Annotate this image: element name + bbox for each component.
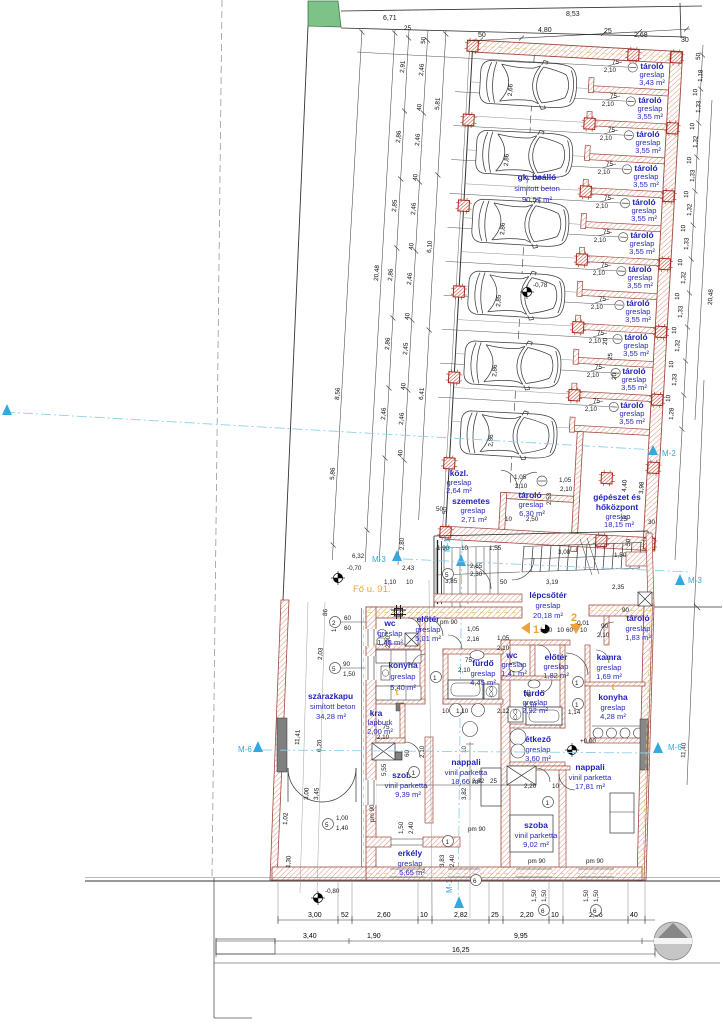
svg-text:2,46: 2,46	[406, 272, 414, 285]
svg-text:2,50: 2,50	[526, 516, 539, 523]
svg-text:25: 25	[620, 516, 628, 523]
svg-text:greslap: greslap	[391, 672, 416, 681]
svg-text:3,08: 3,08	[558, 549, 571, 556]
svg-text:1: 1	[546, 800, 550, 807]
svg-text:2,35: 2,35	[612, 584, 625, 591]
svg-text:2,64 m²: 2,64 m²	[446, 486, 472, 495]
svg-text:2,46: 2,46	[418, 63, 426, 76]
svg-text:75: 75	[612, 59, 620, 66]
svg-text:vinil parketta: vinil parketta	[385, 781, 428, 790]
svg-text:50: 50	[478, 32, 486, 39]
svg-text:pm 90: pm 90	[528, 858, 546, 865]
svg-text:20,48: 20,48	[373, 264, 381, 281]
svg-text:10: 10	[692, 88, 699, 96]
svg-text:2,40: 2,40	[449, 854, 456, 867]
svg-text:nappali: nappali	[575, 762, 604, 772]
svg-text:40: 40	[397, 449, 405, 457]
svg-text:10: 10	[677, 258, 684, 266]
svg-text:2,90: 2,90	[385, 635, 392, 648]
svg-text:40: 40	[400, 382, 408, 390]
svg-text:2,60: 2,60	[377, 912, 391, 919]
svg-text:90: 90	[622, 607, 630, 614]
svg-text:10: 10	[665, 394, 672, 402]
svg-text:pm 90: pm 90	[369, 804, 376, 822]
svg-text:kra: kra	[370, 708, 383, 718]
svg-text:1,32: 1,32	[692, 135, 700, 148]
svg-text:1,05: 1,05	[514, 474, 527, 481]
svg-text:3,55 m²: 3,55 m²	[629, 247, 655, 256]
svg-text:2,53: 2,53	[546, 492, 553, 505]
svg-text:75: 75	[601, 262, 609, 269]
svg-text:10: 10	[671, 326, 678, 334]
svg-text:2,10: 2,10	[593, 270, 606, 277]
svg-text:50: 50	[695, 52, 702, 60]
svg-text:4,45 m²: 4,45 m²	[470, 678, 496, 687]
svg-text:M-3: M-3	[372, 555, 386, 564]
svg-text:90: 90	[343, 661, 351, 668]
svg-text:vinil parketta: vinil parketta	[445, 768, 488, 777]
svg-text:1,50: 1,50	[398, 821, 405, 834]
svg-text:8,53: 8,53	[566, 11, 580, 18]
svg-text:M-2: M-2	[662, 449, 676, 458]
svg-text:2,16: 2,16	[467, 636, 480, 643]
svg-text:25: 25	[404, 25, 412, 32]
svg-text:előtér: előtér	[417, 614, 441, 624]
svg-text:2,86: 2,86	[384, 337, 392, 350]
svg-text:1,33: 1,33	[677, 305, 685, 318]
svg-text:6: 6	[473, 878, 477, 885]
svg-text:20,48: 20,48	[707, 289, 715, 306]
svg-text:3,55 m²: 3,55 m²	[625, 315, 651, 324]
svg-text:25: 25	[607, 352, 614, 360]
svg-text:2,86: 2,86	[395, 130, 403, 143]
svg-text:-0,80: -0,80	[325, 888, 340, 895]
svg-text:3,55 m²: 3,55 m²	[635, 146, 661, 155]
svg-text:2,80: 2,80	[399, 537, 406, 550]
svg-text:3,98: 3,98	[638, 481, 646, 494]
svg-text:75: 75	[382, 724, 390, 731]
svg-text:2,10: 2,10	[598, 169, 611, 176]
svg-text:2,45: 2,45	[402, 342, 410, 355]
svg-text:75: 75	[593, 398, 601, 405]
svg-text:pm 90: pm 90	[586, 858, 604, 865]
svg-text:1,18: 1,18	[697, 69, 705, 82]
svg-text:40: 40	[630, 912, 638, 919]
svg-text:10: 10	[683, 190, 690, 198]
svg-text:50: 50	[420, 36, 428, 44]
svg-text:1,33: 1,33	[689, 169, 697, 182]
svg-text:75: 75	[606, 161, 614, 168]
svg-text:10: 10	[680, 224, 687, 232]
svg-text:2,10: 2,10	[377, 734, 390, 741]
svg-text:10: 10	[505, 516, 513, 523]
svg-text:40: 40	[404, 312, 412, 320]
svg-text:2,86: 2,86	[491, 364, 499, 377]
svg-text:25: 25	[490, 778, 498, 785]
svg-text:1,50: 1,50	[593, 889, 600, 902]
svg-text:2,12: 2,12	[497, 708, 510, 715]
svg-text:75: 75	[599, 296, 607, 303]
svg-text:2,10: 2,10	[604, 67, 617, 74]
svg-text:40: 40	[408, 242, 416, 250]
svg-text:greslap: greslap	[519, 500, 544, 509]
svg-text:greslap: greslap	[544, 662, 569, 671]
svg-text:2,10: 2,10	[419, 745, 426, 758]
svg-text:8,56: 8,56	[334, 387, 342, 400]
svg-text:3,55 m²: 3,55 m²	[623, 349, 649, 358]
svg-text:simított beton: simított beton	[514, 184, 560, 193]
svg-text:étkező: étkező	[525, 734, 551, 744]
svg-text:3,00: 3,00	[303, 787, 311, 800]
svg-text:1,90: 1,90	[367, 933, 381, 940]
svg-text:tároló: tároló	[518, 490, 541, 500]
svg-text:2,86: 2,86	[503, 153, 511, 166]
svg-text:90,57 m²: 90,57 m²	[522, 195, 552, 204]
svg-text:3,55 m²: 3,55 m²	[637, 112, 663, 121]
svg-text:5,55: 5,55	[381, 763, 388, 776]
svg-text:60: 60	[344, 615, 352, 622]
svg-text:1,50: 1,50	[531, 889, 538, 902]
svg-text:1,33: 1,33	[683, 237, 691, 250]
svg-text:20: 20	[602, 337, 609, 345]
svg-text:3,40: 3,40	[303, 933, 317, 940]
svg-text:2,10: 2,10	[524, 702, 537, 709]
svg-text:2,10: 2,10	[589, 338, 602, 345]
svg-text:75: 75	[595, 364, 603, 371]
svg-text:1: 1	[446, 839, 450, 846]
svg-text:40: 40	[412, 173, 420, 181]
svg-text:5: 5	[332, 666, 336, 673]
svg-text:75: 75	[610, 93, 618, 100]
svg-text:75: 75	[597, 330, 605, 337]
svg-text:9,95: 9,95	[514, 933, 528, 940]
svg-text:60: 60	[344, 625, 352, 632]
svg-text:5,81: 5,81	[434, 97, 442, 110]
svg-text:1,00: 1,00	[336, 815, 349, 822]
svg-text:2,46: 2,46	[410, 202, 418, 215]
svg-text:86: 86	[322, 608, 329, 616]
svg-text:1,33: 1,33	[695, 100, 703, 113]
svg-text:greslap: greslap	[416, 625, 441, 634]
svg-text:1,83 m²: 1,83 m²	[625, 633, 651, 642]
svg-text:5,01 m²: 5,01 m²	[415, 634, 441, 643]
svg-text:hőközpont: hőközpont	[596, 502, 639, 512]
svg-text:25: 25	[491, 912, 499, 919]
svg-text:1,32: 1,32	[686, 203, 694, 216]
svg-text:50: 50	[625, 538, 632, 546]
svg-text:1,10: 1,10	[384, 579, 397, 586]
svg-text:52: 52	[341, 912, 349, 919]
svg-text:10: 10	[689, 122, 696, 130]
svg-text:6,71: 6,71	[383, 15, 397, 22]
svg-text:2,86: 2,86	[387, 268, 395, 281]
svg-text:2,10: 2,10	[596, 203, 609, 210]
svg-text:11,41: 11,41	[294, 729, 302, 745]
svg-text:2,40: 2,40	[408, 821, 415, 834]
svg-text:2,71 m²: 2,71 m²	[461, 515, 487, 524]
svg-text:60: 60	[404, 749, 411, 757]
svg-text:10: 10	[552, 783, 560, 790]
svg-text:2,20: 2,20	[524, 783, 537, 790]
svg-text:gk. beálló: gk. beálló	[518, 172, 557, 182]
svg-text:3,55 m²: 3,55 m²	[631, 214, 657, 223]
svg-text:2,82: 2,82	[454, 912, 468, 919]
svg-text:greslap: greslap	[398, 859, 423, 868]
svg-text:greslap: greslap	[626, 624, 651, 633]
svg-text:2,10: 2,10	[594, 237, 607, 244]
svg-text:2,10: 2,10	[497, 645, 510, 652]
svg-text:szemetes: szemetes	[452, 496, 490, 506]
svg-text:3,55 m²: 3,55 m²	[621, 383, 647, 392]
svg-text:M-1: M-1	[443, 538, 452, 552]
svg-text:1,33: 1,33	[671, 373, 679, 386]
svg-text:-0,01: -0,01	[575, 620, 590, 627]
svg-text:1,05: 1,05	[467, 626, 480, 633]
svg-text:3,55 m²: 3,55 m²	[619, 417, 645, 426]
svg-text:2,10: 2,10	[602, 101, 615, 108]
svg-text:3,83: 3,83	[439, 854, 446, 867]
svg-text:17,81 m²: 17,81 m²	[575, 782, 605, 791]
svg-text:2,46: 2,46	[380, 407, 388, 420]
svg-text:3,55 m²: 3,55 m²	[633, 180, 659, 189]
svg-text:1,14: 1,14	[568, 709, 581, 716]
svg-text:1,02: 1,02	[282, 812, 290, 825]
svg-text:1,30: 1,30	[285, 855, 293, 868]
svg-text:greslap: greslap	[601, 703, 626, 712]
svg-text:10: 10	[686, 156, 693, 164]
svg-text:szoba: szoba	[524, 820, 548, 830]
svg-text:3,82: 3,82	[461, 787, 468, 800]
svg-text:10: 10	[551, 912, 559, 919]
svg-text:2,85: 2,85	[391, 199, 399, 212]
svg-text:34,28 m²: 34,28 m²	[316, 712, 346, 721]
svg-text:2,10: 2,10	[587, 372, 600, 379]
svg-text:10: 10	[580, 627, 588, 634]
svg-text:1: 1	[575, 680, 579, 687]
svg-text:1,50: 1,50	[614, 552, 627, 559]
svg-text:nappali: nappali	[451, 757, 480, 767]
svg-text:3,19: 3,19	[546, 579, 559, 586]
svg-text:közl.: közl.	[450, 468, 469, 478]
svg-text:16,25: 16,25	[452, 947, 470, 954]
svg-text:2: 2	[332, 620, 336, 627]
svg-text:előtér: előtér	[545, 652, 569, 662]
svg-text:greslap: greslap	[536, 601, 561, 610]
svg-text:2,10: 2,10	[458, 667, 471, 674]
svg-text:2,68: 2,68	[634, 32, 648, 39]
svg-text:1,82 m²: 1,82 m²	[543, 671, 569, 680]
svg-text:10: 10	[668, 360, 675, 368]
svg-text:t: t	[396, 687, 399, 697]
svg-text:9,02 m²: 9,02 m²	[523, 840, 549, 849]
svg-text:60: 60	[566, 627, 574, 634]
svg-text:5,40 m²: 5,40 m²	[390, 683, 416, 692]
svg-text:konyha: konyha	[388, 660, 418, 670]
svg-text:1,05: 1,05	[559, 477, 572, 484]
svg-text:-0,78: -0,78	[533, 282, 548, 289]
svg-text:2,46: 2,46	[414, 133, 422, 146]
svg-text:75: 75	[604, 195, 612, 202]
svg-text:t: t	[612, 682, 615, 692]
svg-text:2,10: 2,10	[515, 483, 528, 490]
svg-text:erkély: erkély	[398, 848, 423, 858]
svg-text:40: 40	[416, 103, 424, 111]
svg-text:+0,00: +0,00	[580, 738, 596, 745]
svg-text:konyha: konyha	[598, 692, 628, 702]
svg-text:6,32: 6,32	[352, 553, 365, 560]
svg-text:50: 50	[500, 579, 508, 586]
svg-text:1: 1	[433, 675, 437, 682]
svg-text:szárazkapu: szárazkapu	[308, 691, 353, 701]
svg-text:2,66: 2,66	[507, 83, 515, 96]
svg-text:20: 20	[611, 372, 618, 380]
svg-text:greslap: greslap	[461, 506, 486, 515]
svg-text:2,10: 2,10	[600, 135, 613, 142]
svg-text:90: 90	[601, 623, 609, 630]
svg-text:M-3: M-3	[688, 576, 702, 585]
svg-text:1: 1	[575, 702, 579, 709]
svg-text:2,86: 2,86	[499, 222, 507, 235]
svg-text:1,28: 1,28	[668, 407, 676, 420]
svg-text:6,10: 6,10	[426, 240, 434, 253]
svg-text:1,32: 1,32	[680, 271, 688, 284]
svg-text:greslap: greslap	[471, 669, 496, 678]
svg-text:1,05: 1,05	[497, 635, 510, 642]
svg-text:2,10: 2,10	[597, 632, 610, 639]
svg-text:2,10: 2,10	[591, 304, 604, 311]
svg-text:1,50: 1,50	[541, 889, 548, 902]
svg-text:lépcsőtér: lépcsőtér	[529, 590, 567, 600]
svg-text:1,50: 1,50	[343, 671, 356, 678]
svg-text:1,41 m²: 1,41 m²	[501, 669, 527, 678]
svg-text:-0,70: -0,70	[347, 565, 362, 572]
svg-text:3,55 m²: 3,55 m²	[627, 281, 653, 290]
svg-text:greslap: greslap	[502, 660, 527, 669]
svg-text:2,10: 2,10	[585, 406, 598, 413]
svg-text:2,30: 2,30	[470, 571, 483, 578]
svg-text:5,86: 5,86	[329, 467, 337, 480]
svg-text:5,65 m²: 5,65 m²	[399, 868, 425, 877]
svg-text:1,32: 1,32	[674, 339, 682, 352]
svg-text:20,18 m²: 20,18 m²	[533, 611, 563, 620]
svg-text:1: 1	[412, 770, 416, 777]
svg-text:1,69 m²: 1,69 m²	[596, 672, 622, 681]
svg-text:30: 30	[648, 519, 656, 526]
svg-text:gépészet és: gépészet és	[593, 492, 641, 502]
svg-text:fürdő: fürdő	[472, 658, 493, 668]
svg-text:10: 10	[406, 579, 414, 586]
svg-text:M-6: M-6	[238, 745, 252, 754]
svg-text:6: 6	[541, 908, 545, 915]
svg-text:vinil parketta: vinil parketta	[569, 773, 612, 782]
svg-text:4,80: 4,80	[538, 27, 552, 34]
svg-text:2,46: 2,46	[398, 412, 406, 425]
svg-text:10: 10	[557, 627, 565, 634]
svg-text:2,43: 2,43	[402, 565, 415, 572]
svg-text:10: 10	[442, 708, 450, 715]
svg-text:75: 75	[524, 692, 532, 699]
svg-text:2,65: 2,65	[470, 563, 483, 570]
svg-text:tároló: tároló	[626, 613, 649, 623]
svg-text:3,43 m²: 3,43 m²	[639, 78, 665, 87]
svg-text:pm 90: pm 90	[468, 826, 486, 833]
svg-text:1,10: 1,10	[456, 708, 469, 715]
svg-text:2,82: 2,82	[472, 778, 485, 785]
svg-text:50: 50	[442, 506, 449, 514]
svg-text:5: 5	[445, 572, 449, 579]
svg-text:1,40: 1,40	[336, 825, 349, 832]
svg-text:6,41: 6,41	[418, 387, 426, 400]
svg-text:75: 75	[608, 127, 616, 134]
svg-text:M-6: M-6	[668, 743, 682, 752]
svg-text:2,91: 2,91	[399, 60, 407, 73]
svg-text:4,28 m²: 4,28 m²	[600, 712, 626, 721]
svg-text:5: 5	[325, 822, 329, 829]
svg-text:75: 75	[465, 657, 473, 664]
svg-text:9,39 m²: 9,39 m²	[395, 790, 421, 799]
svg-text:30: 30	[681, 37, 689, 44]
svg-text:2,20: 2,20	[520, 912, 534, 919]
svg-text:3,60 m²: 3,60 m²	[525, 754, 551, 763]
svg-text:1,50: 1,50	[583, 889, 590, 902]
svg-text:3,00: 3,00	[308, 912, 322, 919]
svg-text:kamra: kamra	[597, 652, 622, 662]
svg-text:simított beton: simított beton	[310, 702, 356, 711]
svg-text:1,50: 1,50	[540, 627, 553, 634]
svg-text:25: 25	[604, 28, 612, 35]
svg-text:10: 10	[420, 912, 428, 919]
svg-text:2,85: 2,85	[495, 294, 503, 307]
svg-text:6: 6	[593, 908, 597, 915]
svg-text:pm 90: pm 90	[440, 619, 458, 626]
svg-text:wc: wc	[383, 618, 396, 628]
svg-text:1: 1	[533, 624, 539, 636]
svg-text:4,40: 4,40	[621, 479, 629, 492]
svg-text:10: 10	[674, 292, 681, 300]
svg-text:greslap: greslap	[597, 663, 622, 672]
svg-text:vinil parketta: vinil parketta	[515, 831, 558, 840]
svg-text:1,55: 1,55	[489, 545, 502, 552]
svg-text:2,10: 2,10	[560, 486, 573, 493]
